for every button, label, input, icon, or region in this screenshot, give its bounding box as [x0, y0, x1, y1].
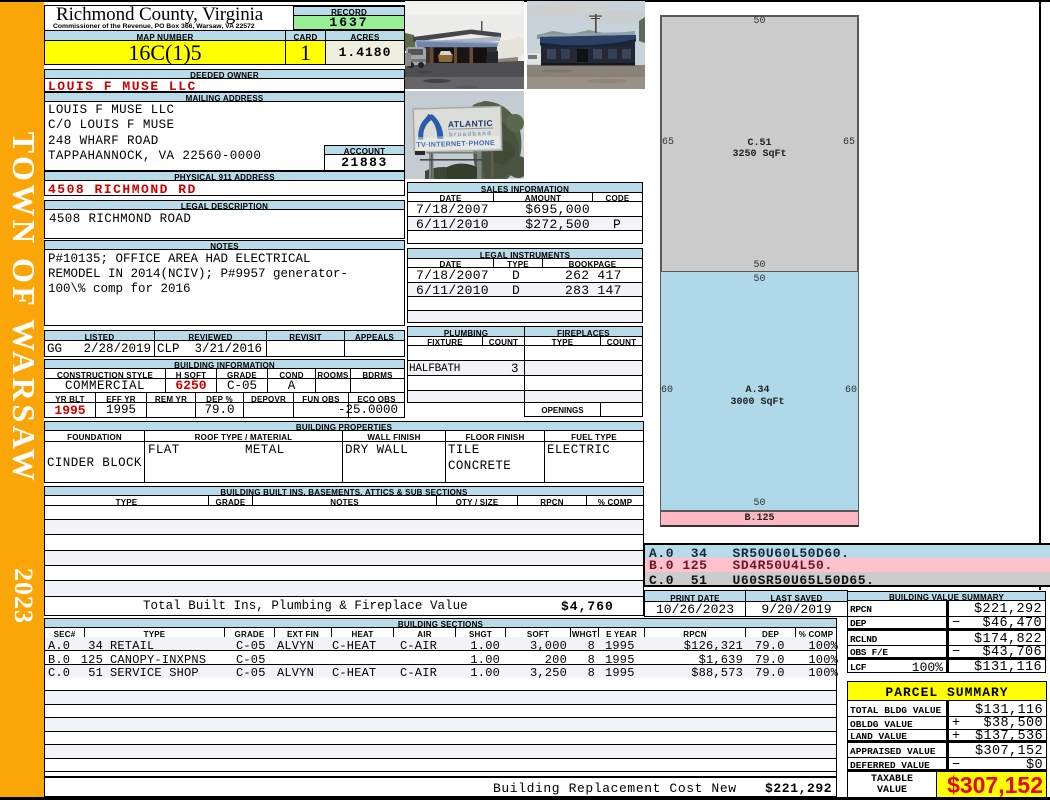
svg-text:ATLANTIC: ATLANTIC	[448, 118, 493, 129]
svg-text:broadband: broadband	[449, 131, 492, 138]
